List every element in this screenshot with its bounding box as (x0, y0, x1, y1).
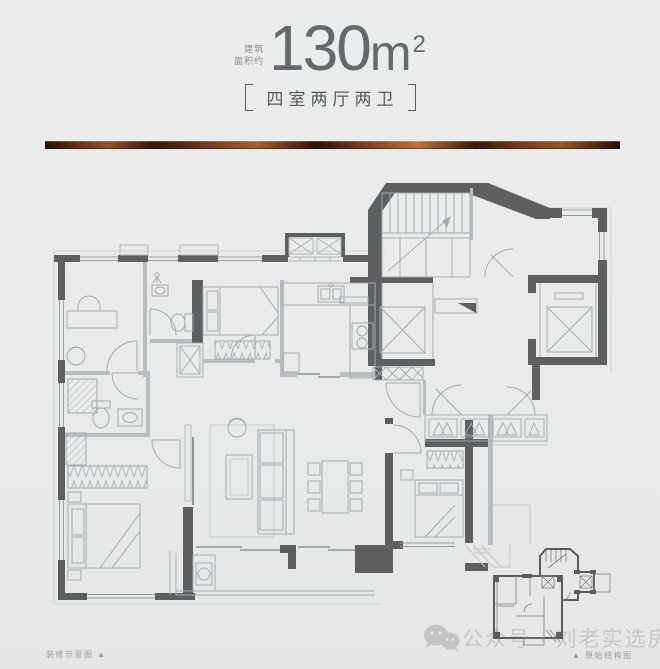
balcony-sliding-door (196, 547, 355, 550)
bedroom-3 (401, 451, 463, 537)
bedroom-2 (203, 287, 278, 359)
bracket-right (408, 84, 416, 111)
interior-walls (65, 188, 493, 545)
mini-structure-plan (486, 546, 618, 648)
balcony (170, 551, 375, 595)
page: { "header": { "area_prefix_line1": "建筑",… (0, 0, 660, 669)
layout-tag-row: 四室两厅两卫 (0, 84, 660, 111)
header-area: 建筑 面积约 130m2 (0, 18, 660, 82)
layout-tag: 四室两厅两卫 (253, 85, 408, 110)
living-room (185, 418, 294, 537)
elevator-shaft-1 (340, 283, 433, 359)
area-value: 130 (269, 12, 370, 84)
stairwell (382, 193, 470, 277)
left-caption: 装修示意图 ▲ (46, 649, 107, 660)
kitchen-sliding-door (297, 374, 340, 377)
top-bay-closets (120, 238, 341, 261)
left-caption-text: 装修示意图 (46, 650, 94, 659)
area-unit: m (370, 25, 412, 81)
area-prefix-label: 建筑 面积约 (234, 44, 264, 67)
area-prefix-line2: 面积约 (234, 56, 264, 68)
triangle-up-icon: ▲ (97, 650, 106, 659)
duct-shaft (177, 343, 203, 377)
elevator-shaft-2 (540, 283, 596, 357)
windows (60, 210, 605, 598)
master-bathroom (68, 379, 142, 428)
triangle-up-icon: ▲ (572, 651, 581, 660)
master-bedroom (66, 433, 147, 580)
area-figure: 130m2 (269, 18, 426, 82)
mini-interior (494, 550, 610, 645)
dining-area (308, 461, 362, 513)
area-exponent: 2 (413, 31, 426, 58)
right-caption-text: 原始结构图 (585, 651, 633, 660)
area-prefix-line1: 建筑 (234, 44, 264, 56)
planter-platform (425, 415, 547, 441)
copper-divider-bar (45, 141, 620, 149)
study-room (67, 296, 117, 365)
outer-offset-outline (54, 208, 611, 604)
fire-hydrant-box (435, 299, 477, 313)
wechat-icon (422, 622, 462, 654)
mini-structure-plan-svg (486, 546, 618, 648)
bracket-left (245, 84, 253, 111)
right-caption: ▲ 原始结构图 (572, 650, 633, 661)
